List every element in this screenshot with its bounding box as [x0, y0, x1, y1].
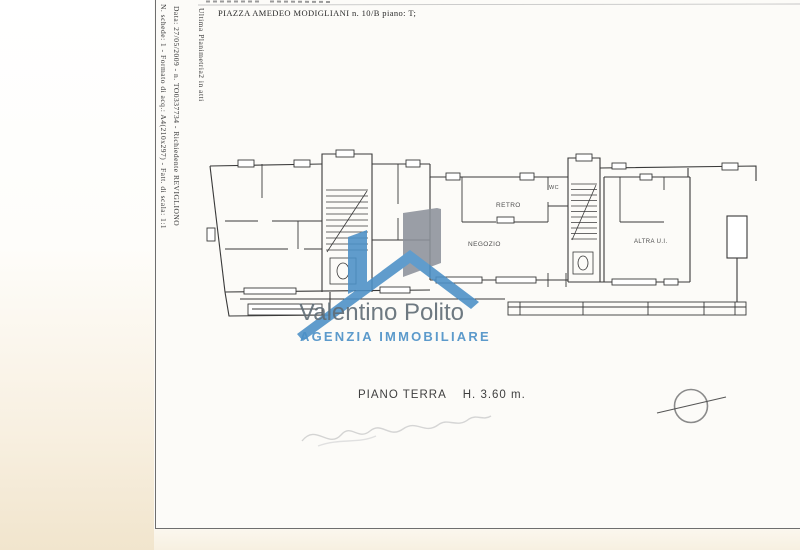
- floor-label: PIANO TERRA: [358, 389, 447, 401]
- page-edge-lines: [155, 0, 800, 529]
- staircase-right: [571, 184, 597, 274]
- signature-scribble: [302, 416, 491, 446]
- floor-caption: PIANO TERRAH. 3.60 m.: [358, 389, 526, 401]
- margin-note-schede: N. schede: 1 - Formato di acq.: A4(210x2…: [159, 4, 168, 229]
- scanned-floorplan-document: PIAZZA AMEDEO MODIGLIANI n. 10/B piano: …: [0, 0, 800, 550]
- floor-height-label: H. 3.60 m.: [463, 389, 526, 401]
- watermark-agency-name: Valentino Polito: [299, 299, 509, 327]
- north-orientation-icon: [657, 390, 726, 423]
- floor-plan-drawing: [0, 0, 800, 550]
- margin-note-data: Data: 27/05/2009 - n. TO0337734 - Richie…: [172, 6, 181, 226]
- room-label-wc: WC: [549, 185, 559, 191]
- watermark-agency-subtitle: AGENZIA IMMOBILIARE: [300, 329, 491, 344]
- header-rule-lines: [198, 2, 800, 6]
- room-label-altra-ui: ALTRA U.I.: [634, 239, 668, 245]
- sidewalk-strip: [508, 302, 746, 315]
- room-label-negozio: NEGOZIO: [468, 241, 501, 248]
- header-address: PIAZZA AMEDEO MODIGLIANI n. 10/B piano: …: [218, 8, 416, 18]
- window-marks: [207, 150, 738, 315]
- margin-note-planimetria: Ultima Planimetria2 in atti: [197, 8, 206, 102]
- interior-walls: [225, 164, 664, 287]
- room-label-retro: RETRO: [496, 202, 521, 209]
